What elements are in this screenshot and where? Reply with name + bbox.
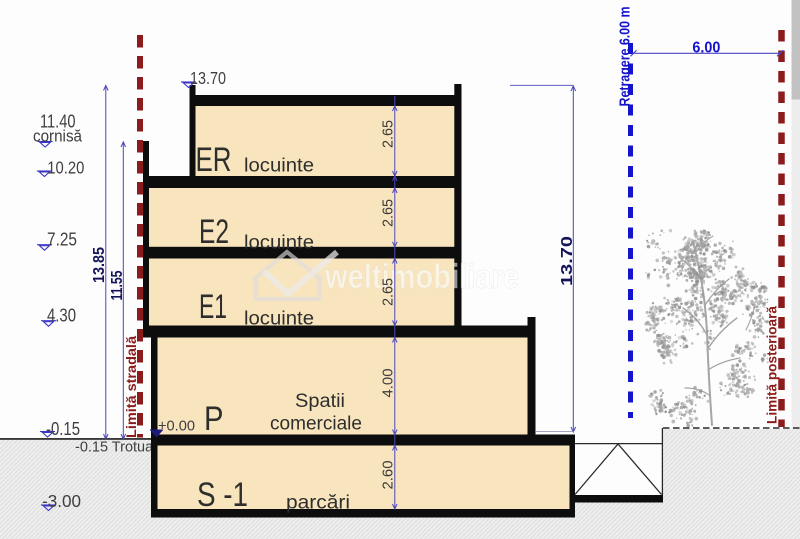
svg-text:4.30: 4.30 (47, 306, 76, 326)
svg-text:Limită posterioară: Limită posterioară (765, 306, 780, 424)
svg-text:-3.00: -3.00 (42, 491, 81, 511)
svg-text:E2: E2 (199, 213, 229, 251)
svg-text:13.70: 13.70 (190, 68, 226, 88)
svg-text:+0.00: +0.00 (158, 418, 195, 435)
svg-text:P: P (204, 400, 224, 438)
svg-text:2.65: 2.65 (380, 120, 397, 148)
svg-text:-0.15: -0.15 (46, 419, 80, 439)
svg-text:2.65: 2.65 (380, 278, 397, 306)
svg-text:7.25: 7.25 (47, 229, 77, 249)
svg-text:-0.15 Trotuar: -0.15 Trotuar (75, 440, 158, 456)
svg-text:13.70: 13.70 (559, 236, 576, 286)
svg-text:cornisă: cornisă (33, 127, 83, 145)
svg-text:weltimobiliare: weltimobiliare (324, 258, 519, 296)
svg-text:comerciale: comerciale (270, 414, 362, 435)
svg-text:6.00: 6.00 (692, 39, 720, 56)
svg-text:11.55: 11.55 (109, 270, 126, 300)
svg-text:10.20: 10.20 (47, 157, 84, 177)
svg-text:S -1: S -1 (197, 476, 248, 514)
svg-text:2.65: 2.65 (380, 199, 397, 227)
svg-text:Retragere 6.00 m: Retragere 6.00 m (618, 7, 634, 107)
svg-text:2.60: 2.60 (380, 461, 397, 490)
svg-text:parcări: parcări (286, 493, 350, 514)
svg-text:locuinte: locuinte (244, 309, 314, 330)
svg-text:4.00: 4.00 (380, 369, 397, 398)
svg-text:13.85: 13.85 (91, 247, 108, 283)
svg-text:Limită stradală: Limită stradală (124, 335, 139, 438)
svg-text:locuinte: locuinte (244, 156, 314, 177)
svg-text:ER: ER (196, 141, 232, 179)
svg-text:Spatii: Spatii (295, 391, 345, 412)
svg-text:locuinte: locuinte (244, 233, 314, 254)
svg-text:E1: E1 (199, 288, 227, 326)
